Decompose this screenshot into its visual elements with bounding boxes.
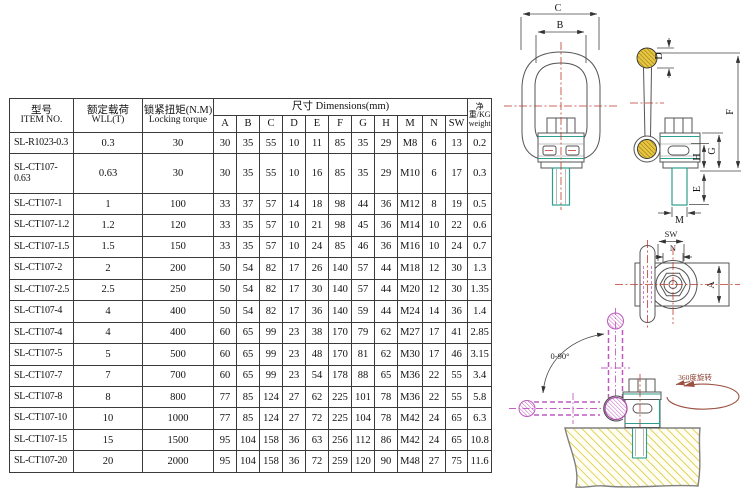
value-cell: M42 [398, 429, 423, 450]
value-cell: 57 [352, 279, 375, 300]
value-cell: 500 [143, 344, 214, 365]
header-torque: 锁紧扭矩(N.M)Locking torque [143, 99, 214, 133]
value-cell: 1500 [143, 429, 214, 450]
value-cell: 22 [423, 365, 446, 386]
value-cell: 124 [260, 408, 283, 429]
value-cell: 30 [446, 279, 468, 300]
value-cell: 57 [260, 215, 283, 236]
value-cell: 35 [237, 133, 260, 154]
value-cell: 17 [283, 301, 306, 322]
value-cell: 225 [329, 408, 352, 429]
value-cell: 78 [375, 387, 398, 408]
value-cell: 256 [329, 429, 352, 450]
value-cell: M42 [398, 408, 423, 429]
value-cell: 12 [423, 279, 446, 300]
value-cell: 50 [214, 258, 237, 279]
value-cell: 24 [423, 408, 446, 429]
value-cell: 16 [306, 154, 329, 193]
value-cell: 44 [375, 258, 398, 279]
pivot-section-circle [605, 398, 627, 420]
value-cell: 112 [352, 429, 375, 450]
value-cell: 30 [143, 133, 214, 154]
item-cell: SL-CT107-10 [10, 408, 74, 429]
value-cell: 4 [74, 301, 143, 322]
swing-range-label: 0-90° [551, 351, 570, 361]
header-dim-letter: B [237, 116, 260, 133]
item-cell: SL-CT107-15 [10, 429, 74, 450]
dim-label-M: M [675, 215, 684, 226]
item-cell: SL-CT107-4 [10, 301, 74, 322]
value-cell: 22 [446, 215, 468, 236]
value-cell: 4 [74, 322, 143, 343]
value-cell: 13 [446, 133, 468, 154]
value-cell: 10 [283, 236, 306, 257]
value-cell: 33 [214, 193, 237, 214]
value-cell: 82 [260, 279, 283, 300]
header-dim-letter: E [306, 116, 329, 133]
value-cell: 1.5 [74, 236, 143, 257]
value-cell: 15 [74, 429, 143, 450]
value-cell: 36 [375, 236, 398, 257]
dim-label-F: F [725, 109, 736, 115]
table-body: SL-R1023-0.30.3303035551011853529M86130.… [10, 133, 492, 473]
value-cell: 79 [352, 322, 375, 343]
side-slot [668, 146, 689, 155]
value-cell: 99 [260, 322, 283, 343]
value-cell: 10 [283, 133, 306, 154]
header-dim-letter: G [352, 116, 375, 133]
table-row: SL-CT107-7770060659923541788865M3622553.… [10, 365, 492, 386]
value-cell: 11.6 [468, 451, 492, 473]
value-cell: 50 [214, 279, 237, 300]
value-cell: 55 [260, 133, 283, 154]
header-dim-letter: M [398, 116, 423, 133]
value-cell: 24 [446, 236, 468, 257]
value-cell: 19 [446, 193, 468, 214]
value-cell: 800 [143, 387, 214, 408]
value-cell: 36 [375, 215, 398, 236]
value-cell: 46 [352, 236, 375, 257]
value-cell: 17 [423, 322, 446, 343]
value-cell: 21 [306, 215, 329, 236]
value-cell: 0.63 [74, 154, 143, 193]
value-cell: 98 [329, 215, 352, 236]
value-cell: 6.3 [468, 408, 492, 429]
value-cell: 95 [214, 429, 237, 450]
value-cell: 77 [214, 408, 237, 429]
value-cell: 1000 [143, 408, 214, 429]
item-cell: SL-CT107-1 [10, 193, 74, 214]
value-cell: 170 [329, 344, 352, 365]
header-dim-letter: H [375, 116, 398, 133]
value-cell: 54 [237, 301, 260, 322]
dim-label-C: C [555, 3, 562, 14]
table-row: SL-CT107-4440060659923381707962M2717412.… [10, 322, 492, 343]
value-cell: 85 [329, 154, 352, 193]
value-cell: 23 [283, 344, 306, 365]
table-row: SL-CT107-4440050548217361405944M2414361.… [10, 301, 492, 322]
value-cell: 22 [423, 387, 446, 408]
spec-sheet: 型号ITEM NO. 额定载荷WLL(T) 锁紧扭矩(N.M)Locking t… [0, 0, 750, 495]
value-cell: 18 [306, 193, 329, 214]
item-cell: SL-CT107-1.2 [10, 215, 74, 236]
value-cell: 77 [214, 387, 237, 408]
value-cell: 55 [260, 154, 283, 193]
value-cell: 36 [283, 429, 306, 450]
value-cell: 62 [375, 344, 398, 365]
dim-label-D: D [654, 52, 665, 59]
value-cell: 46 [446, 344, 468, 365]
value-cell: 120 [352, 451, 375, 473]
value-cell: 72 [306, 451, 329, 473]
header-dim-letter: F [329, 116, 352, 133]
value-cell: 30 [446, 258, 468, 279]
value-cell: 8 [423, 193, 446, 214]
value-cell: 6 [423, 154, 446, 193]
value-cell: 158 [260, 451, 283, 473]
value-cell: 54 [237, 279, 260, 300]
technical-drawings: C B F [490, 0, 750, 495]
value-cell: 35 [237, 154, 260, 193]
value-cell: 23 [283, 322, 306, 343]
table-row: SL-CT107-2220050548217261405744M1812301.… [10, 258, 492, 279]
value-cell: 0.6 [468, 215, 492, 236]
value-cell: 2.5 [74, 279, 143, 300]
value-cell: M8 [398, 133, 423, 154]
front-view: C B [504, 3, 618, 210]
value-cell: 60 [214, 365, 237, 386]
value-cell: 38 [306, 322, 329, 343]
side-view: F D G H E [630, 38, 741, 226]
value-cell: 78 [375, 408, 398, 429]
table-row: SL-CT107-1.51.51503335571024854636M16102… [10, 236, 492, 257]
value-cell: 225 [329, 387, 352, 408]
value-cell: 26 [306, 258, 329, 279]
value-cell: 2000 [143, 451, 214, 473]
value-cell: 24 [423, 429, 446, 450]
header-dim-letter: C [260, 116, 283, 133]
value-cell: 17 [446, 154, 468, 193]
value-cell: M27 [398, 322, 423, 343]
value-cell: 158 [260, 429, 283, 450]
table-row: SL-CT107-101010007785124277222510478M422… [10, 408, 492, 429]
value-cell: M30 [398, 344, 423, 365]
item-cell: SL-CT107-4 [10, 322, 74, 343]
value-cell: 6 [423, 133, 446, 154]
value-cell: 36 [375, 193, 398, 214]
item-cell: SL-CT107-1.5 [10, 236, 74, 257]
value-cell: M16 [398, 236, 423, 257]
value-cell: 85 [329, 236, 352, 257]
value-cell: 29 [375, 133, 398, 154]
header-weight: 净重/KGweight [468, 99, 492, 133]
table-header: 型号ITEM NO. 额定载荷WLL(T) 锁紧扭矩(N.M)Locking t… [10, 99, 492, 133]
header-dimensions: 尺寸 Dimensions(mm) [214, 99, 468, 116]
value-cell: 88 [352, 365, 375, 386]
value-cell: 0.2 [468, 133, 492, 154]
value-cell: 55 [446, 365, 468, 386]
value-cell: 35 [237, 215, 260, 236]
value-cell: 10 [283, 154, 306, 193]
value-cell: 5.8 [468, 387, 492, 408]
table-row: SL-CT107-5550060659923481708162M3017463.… [10, 344, 492, 365]
value-cell: 50 [214, 301, 237, 322]
value-cell: 55 [446, 387, 468, 408]
table-row: SL-R1023-0.30.3303035551011853529M86130.… [10, 133, 492, 154]
swivel-section-circle [638, 140, 657, 159]
value-cell: 104 [237, 429, 260, 450]
value-cell: 200 [143, 258, 214, 279]
value-cell: 45 [352, 215, 375, 236]
value-cell: 54 [237, 258, 260, 279]
dim-label-SW: SW [665, 229, 678, 239]
value-cell: 17 [283, 279, 306, 300]
value-cell: 59 [352, 301, 375, 322]
spec-table: 型号ITEM NO. 额定载荷WLL(T) 锁紧扭矩(N.M)Locking t… [9, 98, 492, 473]
value-cell: 82 [260, 301, 283, 322]
rotate-arrow-ellipse [667, 384, 739, 409]
value-cell: 7 [74, 365, 143, 386]
value-cell: 65 [375, 365, 398, 386]
value-cell: 98 [329, 193, 352, 214]
table-row: SL-CT107-1.21.21203335571021984536M14102… [10, 215, 492, 236]
value-cell: 99 [260, 365, 283, 386]
value-cell: 36 [446, 301, 468, 322]
value-cell: 44 [352, 193, 375, 214]
value-cell: 400 [143, 322, 214, 343]
value-cell: 700 [143, 365, 214, 386]
value-cell: 0.3 [74, 133, 143, 154]
value-cell: 178 [329, 365, 352, 386]
value-cell: M10 [398, 154, 423, 193]
value-cell: 2.85 [468, 322, 492, 343]
value-cell: 27 [283, 387, 306, 408]
dim-label-E: E [692, 186, 703, 192]
value-cell: 90 [375, 451, 398, 473]
value-cell: 75 [446, 451, 468, 473]
value-cell: M48 [398, 451, 423, 473]
header-dim-letter: A [214, 116, 237, 133]
value-cell: 57 [352, 258, 375, 279]
value-cell: 60 [214, 344, 237, 365]
table-row: SL-CT107-2020200095104158367225912090M48… [10, 451, 492, 473]
value-cell: M12 [398, 193, 423, 214]
value-cell: 30 [143, 154, 214, 193]
value-cell: 33 [214, 215, 237, 236]
value-cell: 62 [375, 322, 398, 343]
value-cell: 10 [74, 408, 143, 429]
value-cell: 82 [260, 258, 283, 279]
header-dim-letter: D [283, 116, 306, 133]
item-cell: SL-CT107-5 [10, 344, 74, 365]
value-cell: M24 [398, 301, 423, 322]
table-row: SL-CT107-2.52.525050548217301405744M2012… [10, 279, 492, 300]
value-cell: 250 [143, 279, 214, 300]
item-cell: SL-CT107-0.63 [10, 154, 74, 193]
header-dim-letter: N [423, 116, 446, 133]
value-cell: 140 [329, 301, 352, 322]
value-cell: 35 [352, 154, 375, 193]
value-cell: 100 [143, 193, 214, 214]
value-cell: 27 [423, 451, 446, 473]
value-cell: 10 [423, 215, 446, 236]
value-cell: 35 [237, 236, 260, 257]
value-cell: 140 [329, 258, 352, 279]
value-cell: 3.15 [468, 344, 492, 365]
value-cell: 17 [283, 258, 306, 279]
value-cell: 57 [260, 193, 283, 214]
item-cell: SL-CT107-7 [10, 365, 74, 386]
value-cell: 0.5 [468, 193, 492, 214]
top-view: SW N A [615, 229, 740, 330]
value-cell: M36 [398, 387, 423, 408]
value-cell: 86 [375, 429, 398, 450]
hex-nut-side [665, 118, 692, 133]
dim-label-H: H [692, 153, 703, 160]
value-cell: 95 [214, 451, 237, 473]
header-item: 型号ITEM NO. [10, 99, 74, 133]
value-cell: 10 [283, 215, 306, 236]
value-cell: 41 [446, 322, 468, 343]
value-cell: 36 [306, 301, 329, 322]
rotation-view: 0-90° 360度旋转 [509, 308, 739, 487]
value-cell: M14 [398, 215, 423, 236]
value-cell: 44 [375, 279, 398, 300]
value-cell: 1.35 [468, 279, 492, 300]
value-cell: 259 [329, 451, 352, 473]
value-cell: 170 [329, 322, 352, 343]
value-cell: 1.3 [468, 258, 492, 279]
value-cell: 85 [237, 387, 260, 408]
value-cell: 65 [446, 429, 468, 450]
value-cell: 8 [74, 387, 143, 408]
item-cell: SL-CT107-2 [10, 258, 74, 279]
value-cell: 1 [74, 193, 143, 214]
value-cell: 14 [283, 193, 306, 214]
value-cell: 35 [352, 133, 375, 154]
value-cell: 0.7 [468, 236, 492, 257]
value-cell: 85 [329, 133, 352, 154]
value-cell: 140 [329, 279, 352, 300]
value-cell: 10.8 [468, 429, 492, 450]
stud-in-base [633, 429, 647, 458]
item-cell: SL-CT107-20 [10, 451, 74, 473]
hex-nut-mounted [629, 379, 655, 392]
swing-arc [543, 334, 604, 393]
value-cell: 1.2 [74, 215, 143, 236]
value-cell: 124 [260, 387, 283, 408]
table-row: SL-CT107-888007785124276222510178M362255… [10, 387, 492, 408]
item-cell: SL-CT107-8 [10, 387, 74, 408]
value-cell: 20 [74, 451, 143, 473]
value-cell: 27 [283, 408, 306, 429]
header-wll: 额定载荷WLL(T) [74, 99, 143, 133]
value-cell: 14 [423, 301, 446, 322]
value-cell: 63 [306, 429, 329, 450]
value-cell: 120 [143, 215, 214, 236]
value-cell: 3.4 [468, 365, 492, 386]
value-cell: 72 [306, 408, 329, 429]
value-cell: 101 [352, 387, 375, 408]
value-cell: 400 [143, 301, 214, 322]
value-cell: M20 [398, 279, 423, 300]
value-cell: 62 [306, 387, 329, 408]
value-cell: 5 [74, 344, 143, 365]
dim-label-G: G [707, 147, 718, 154]
value-cell: 104 [237, 451, 260, 473]
value-cell: 1.4 [468, 301, 492, 322]
value-cell: 85 [237, 408, 260, 429]
item-cell: SL-CT107-2.5 [10, 279, 74, 300]
value-cell: 0.3 [468, 154, 492, 193]
value-cell: 17 [423, 344, 446, 365]
value-cell: M18 [398, 258, 423, 279]
value-cell: 10 [423, 236, 446, 257]
value-cell: 44 [375, 301, 398, 322]
mounted-slot [633, 404, 652, 413]
value-cell: 57 [260, 236, 283, 257]
dim-label-B: B [557, 20, 564, 31]
value-cell: 65 [237, 365, 260, 386]
value-cell: 12 [423, 258, 446, 279]
value-cell: 65 [237, 344, 260, 365]
value-cell: 23 [283, 365, 306, 386]
value-cell: 60 [214, 322, 237, 343]
value-cell: 30 [214, 154, 237, 193]
value-cell: 150 [143, 236, 214, 257]
table-row: SL-CT107-0.630.63303035551016853529M1061… [10, 154, 492, 193]
value-cell: 11 [306, 133, 329, 154]
rotate-360-label: 360度旋转 [678, 372, 712, 382]
value-cell: 81 [352, 344, 375, 365]
value-cell: 36 [283, 451, 306, 473]
item-cell: SL-R1023-0.3 [10, 133, 74, 154]
table-row: SL-CT107-111003337571418984436M128190.5 [10, 193, 492, 214]
value-cell: 99 [260, 344, 283, 365]
value-cell: 30 [306, 279, 329, 300]
value-cell: 33 [214, 236, 237, 257]
stud-side [672, 168, 687, 205]
value-cell: 24 [306, 236, 329, 257]
value-cell: 65 [237, 322, 260, 343]
value-cell: 29 [375, 154, 398, 193]
value-cell: 65 [446, 408, 468, 429]
table-row: SL-CT107-1515150095104158366325611286M42… [10, 429, 492, 450]
value-cell: 30 [214, 133, 237, 154]
value-cell: 37 [237, 193, 260, 214]
value-cell: 48 [306, 344, 329, 365]
value-cell: 104 [352, 408, 375, 429]
value-cell: M36 [398, 365, 423, 386]
header-dim-letter: SW [446, 116, 468, 133]
value-cell: 2 [74, 258, 143, 279]
value-cell: 54 [306, 365, 329, 386]
